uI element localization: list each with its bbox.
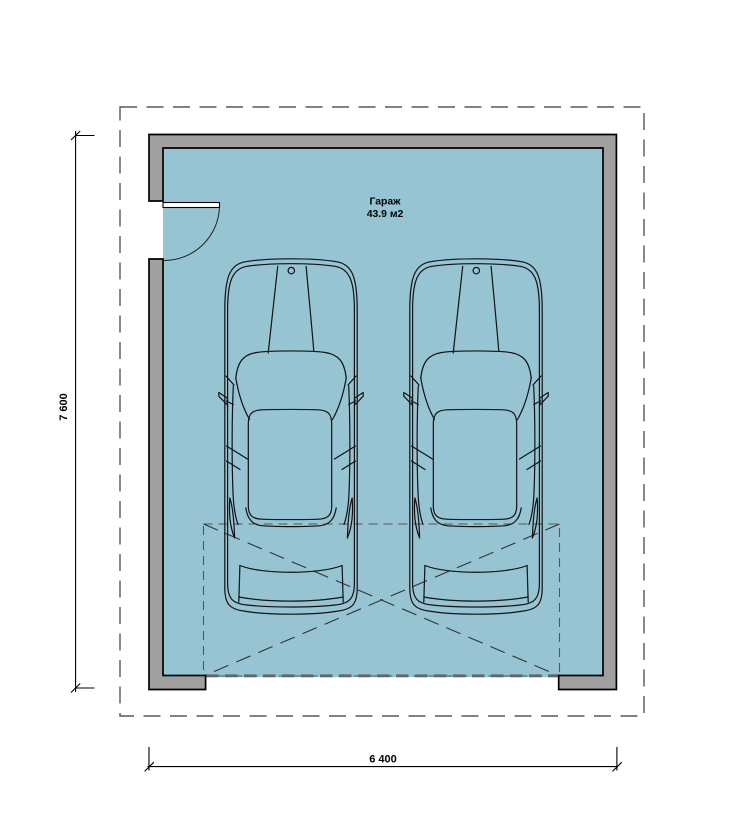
svg-text:Гараж: Гараж — [369, 197, 401, 208]
svg-text:43.9 м2: 43.9 м2 — [367, 209, 404, 220]
svg-text:7 600: 7 600 — [58, 393, 70, 421]
svg-text:6 400: 6 400 — [369, 754, 397, 766]
